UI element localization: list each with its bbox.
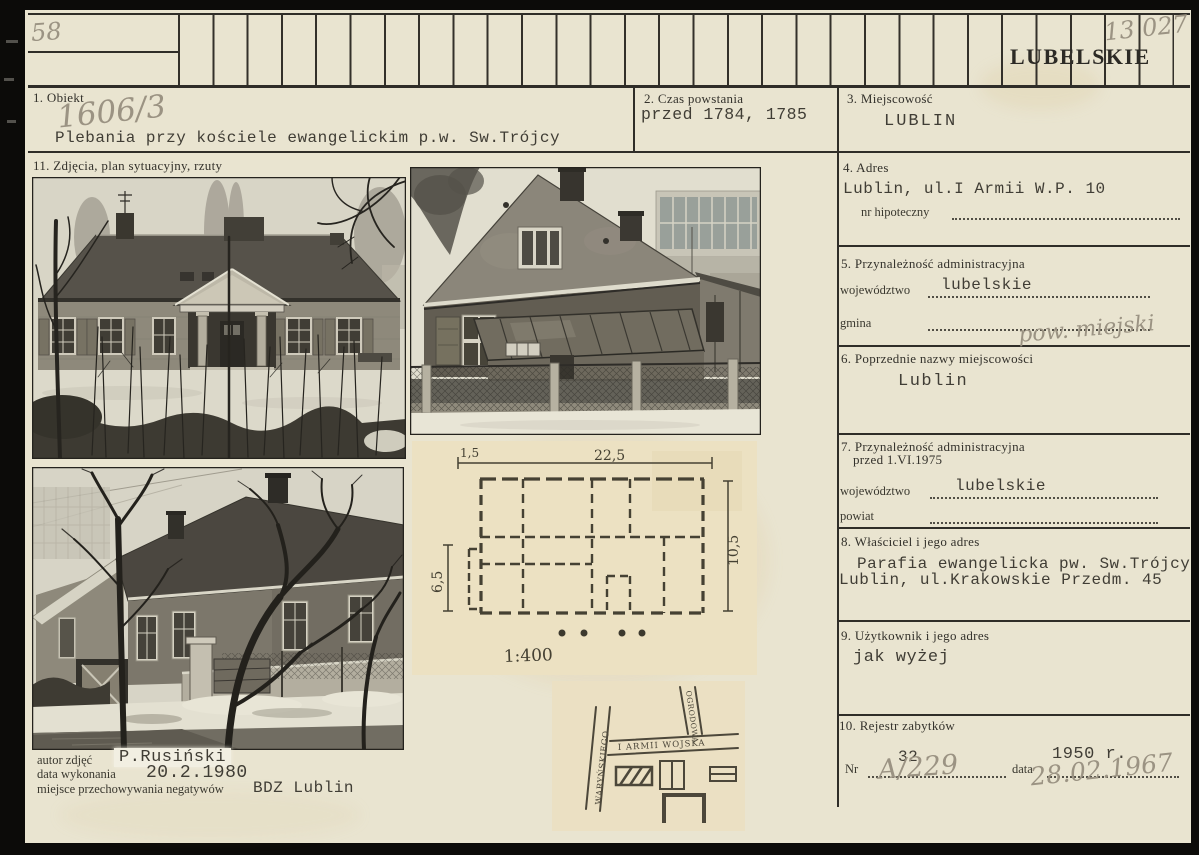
field-3-value: LUBLIN bbox=[884, 112, 957, 131]
field-6-label: 6. Poprzednie nazwy miejscowości bbox=[841, 351, 1033, 367]
chain-link-fence bbox=[410, 367, 761, 411]
field-11-label: 11. Zdjęcia, plan sytuacyjny, rzuty bbox=[33, 158, 222, 174]
field-10-label: 10. Rejestr zabytków bbox=[839, 718, 955, 734]
field-2-value: przed 1784, 1785 bbox=[641, 105, 807, 124]
heritage-record-card-scan: 58 13 027 LUBELSKIE 1. Obiekt 1606/3 Ple… bbox=[0, 0, 1199, 855]
field-9-label: 9. Użytkownik i jego adres bbox=[841, 628, 989, 644]
chimney bbox=[116, 213, 134, 239]
divider-line bbox=[837, 620, 1190, 622]
divider-line bbox=[837, 85, 839, 807]
plan-dim-left: 6,5 bbox=[430, 571, 446, 593]
field-6-value: Lublin bbox=[898, 372, 968, 391]
field-4-hipoteczny-label: nr hipoteczny bbox=[861, 205, 929, 220]
photo-street-view bbox=[32, 467, 404, 750]
field-7-powiat-label: powiat bbox=[840, 509, 874, 524]
page-number-underline bbox=[28, 51, 178, 53]
divider-line bbox=[837, 345, 1190, 347]
field-7-label-line2: przed 1.VI.1975 bbox=[853, 452, 942, 468]
field-10-nr-label: Nr bbox=[845, 762, 858, 777]
credit-negatives-value: BDZ Lublin bbox=[253, 779, 354, 797]
field-4-label: 4. Adres bbox=[843, 160, 889, 176]
field-3-label: 3. Miejscowość bbox=[847, 91, 933, 107]
plan-dim-right: 10,5 bbox=[726, 535, 742, 566]
modern-building-background bbox=[32, 487, 110, 559]
top-rule bbox=[28, 13, 1190, 15]
divider-line bbox=[837, 714, 1190, 716]
photo-gable-end bbox=[410, 167, 761, 435]
dotted-line bbox=[930, 497, 1158, 499]
divider-line bbox=[633, 85, 635, 153]
film-edge-mark bbox=[6, 40, 18, 43]
field-8-label: 8. Właściciel i jego adres bbox=[841, 534, 980, 550]
field-8-line2: Lublin, ul.Krakowskie Przedm. 45 bbox=[839, 571, 1162, 589]
field-7-wojewodztwo-value: lubelskie bbox=[955, 477, 1046, 495]
voivodeship-header: LUBELSKIE bbox=[1010, 44, 1151, 70]
credit-date-value: 20.2.1980 bbox=[146, 763, 248, 783]
chimney bbox=[560, 167, 584, 201]
credit-author-label: autor zdjęć bbox=[37, 753, 92, 768]
film-edge-mark bbox=[7, 120, 16, 123]
dotted-line bbox=[952, 218, 1180, 220]
floor-plan: 1,5 22,5 6,5 10,5 1:400 bbox=[412, 441, 757, 675]
divider-line bbox=[28, 151, 1190, 153]
field-5-label: 5. Przynależność administracyjna bbox=[841, 256, 1025, 272]
plan-dim-top: 22,5 bbox=[594, 448, 625, 464]
site-plan: I ARMII WOJSKA WARYŃSKIEGO OGRODOWA bbox=[552, 681, 745, 831]
field-10-nr-annotation: A/229 bbox=[877, 749, 959, 786]
field-7-wojewodztwo-label: województwo bbox=[840, 484, 910, 499]
divider-line bbox=[837, 245, 1190, 247]
dotted-line bbox=[930, 522, 1158, 524]
credit-date-label: data wykonania bbox=[37, 767, 116, 782]
divider-line bbox=[837, 527, 1190, 529]
field-5-gmina-label: gmina bbox=[840, 316, 871, 331]
film-edge-mark bbox=[4, 78, 14, 81]
header-rule bbox=[28, 85, 1190, 88]
page-number: 58 bbox=[30, 17, 62, 47]
gable-window bbox=[518, 227, 562, 269]
credit-negatives-label: miejsce przechowywania negatywów bbox=[37, 782, 224, 797]
divider-line bbox=[837, 433, 1190, 435]
field-1-value: Plebania przy kościele ewangelickim p.w.… bbox=[55, 129, 560, 147]
field-5-wojewodztwo-label: województwo bbox=[840, 283, 910, 298]
field-9-value: jak wyżej bbox=[853, 648, 949, 667]
dotted-line bbox=[928, 296, 1150, 298]
field-5-wojewodztwo-value: lubelskie bbox=[941, 276, 1032, 294]
photo-front-elevation bbox=[32, 177, 406, 459]
plan-dim-top-left: 1,5 bbox=[460, 446, 479, 460]
field-4-value: Lublin, ul.I Armii W.P. 10 bbox=[843, 180, 1106, 198]
chimney bbox=[168, 511, 184, 539]
plan-scale: 1:400 bbox=[503, 645, 553, 667]
